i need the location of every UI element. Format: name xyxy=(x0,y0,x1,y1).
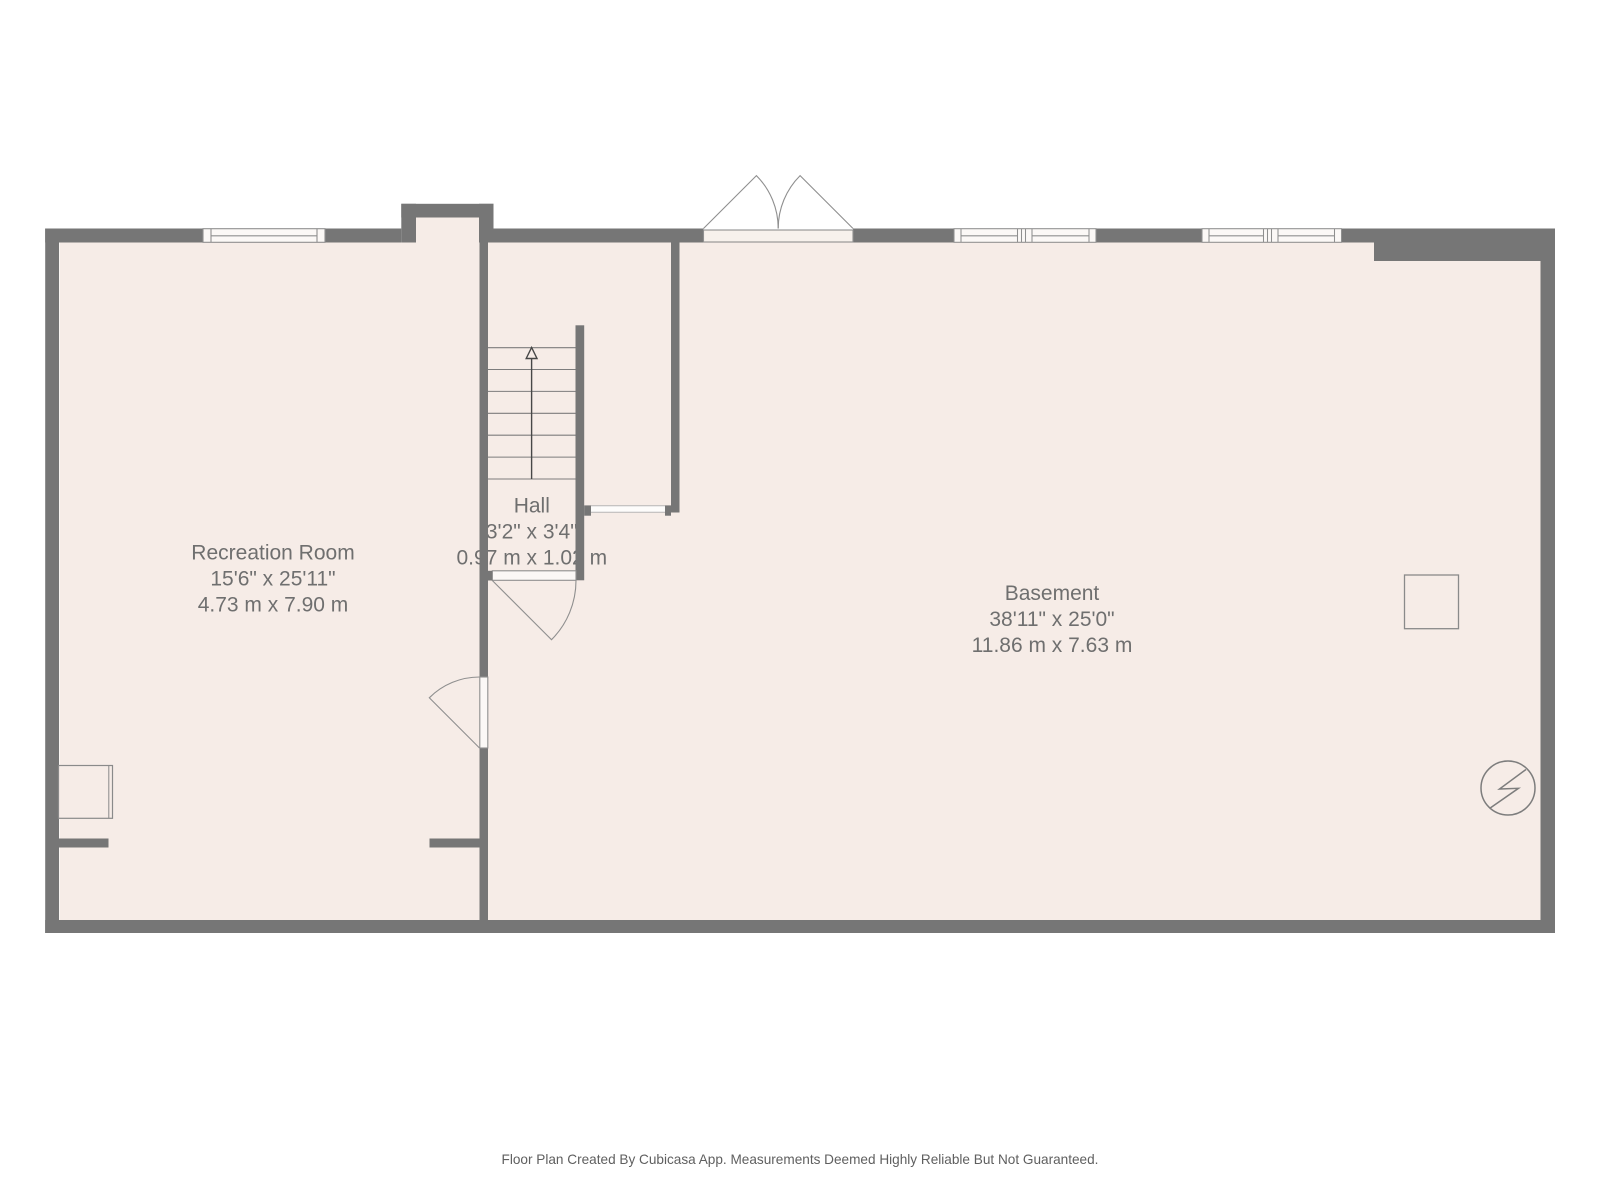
svg-text:Floor Plan Created By Cubicasa: Floor Plan Created By Cubicasa App. Meas… xyxy=(502,1152,1099,1167)
svg-text:38'11" x 25'0": 38'11" x 25'0" xyxy=(989,608,1114,631)
svg-text:4.73 m x 7.90 m: 4.73 m x 7.90 m xyxy=(198,594,349,617)
svg-text:Hall: Hall xyxy=(514,495,550,518)
svg-text:15'6" x 25'11": 15'6" x 25'11" xyxy=(210,568,335,591)
svg-text:3'2" x 3'4": 3'2" x 3'4" xyxy=(486,521,578,544)
svg-text:11.86 m x 7.63 m: 11.86 m x 7.63 m xyxy=(972,634,1133,657)
svg-text:0.97 m x 1.02 m: 0.97 m x 1.02 m xyxy=(457,547,608,570)
svg-text:Recreation Room: Recreation Room xyxy=(191,542,354,565)
svg-text:Basement: Basement xyxy=(1005,582,1100,605)
